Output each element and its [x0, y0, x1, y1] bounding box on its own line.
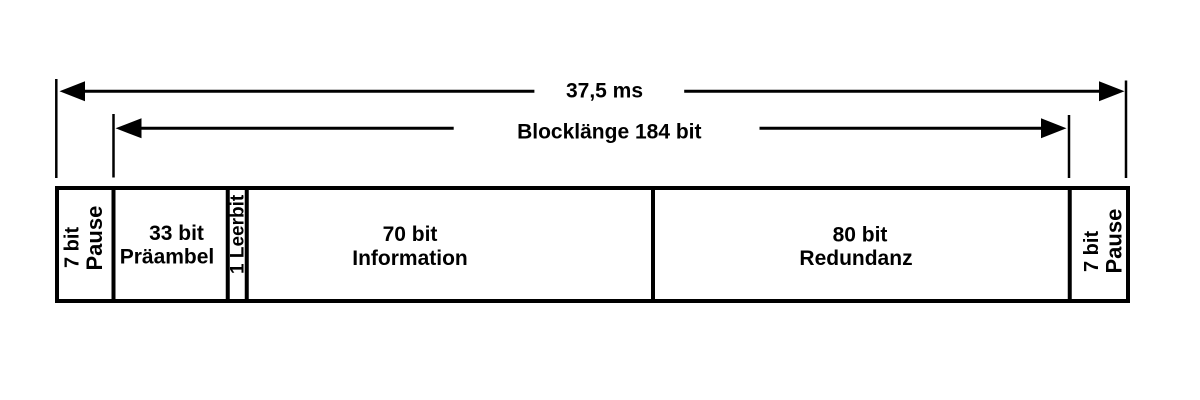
- svg-text:7 bit: 7 bit: [1081, 231, 1103, 272]
- svg-text:7 bit: 7 bit: [62, 227, 84, 268]
- svg-text:Pause: Pause: [1102, 209, 1127, 274]
- svg-text:Pause: Pause: [82, 206, 107, 271]
- svg-text:Präambel: Präambel: [120, 246, 215, 269]
- svg-text:37,5 ms: 37,5 ms: [566, 80, 643, 103]
- svg-text:Redundanz: Redundanz: [799, 247, 912, 270]
- svg-text:80 bit: 80 bit: [833, 224, 888, 247]
- svg-text:1 Leerbit: 1 Leerbit: [228, 194, 249, 274]
- svg-text:70 bit: 70 bit: [383, 223, 438, 246]
- svg-text:Information: Information: [352, 247, 468, 270]
- svg-text:33 bit: 33 bit: [149, 222, 204, 245]
- svg-text:Blocklänge 184 bit: Blocklänge 184 bit: [517, 120, 701, 143]
